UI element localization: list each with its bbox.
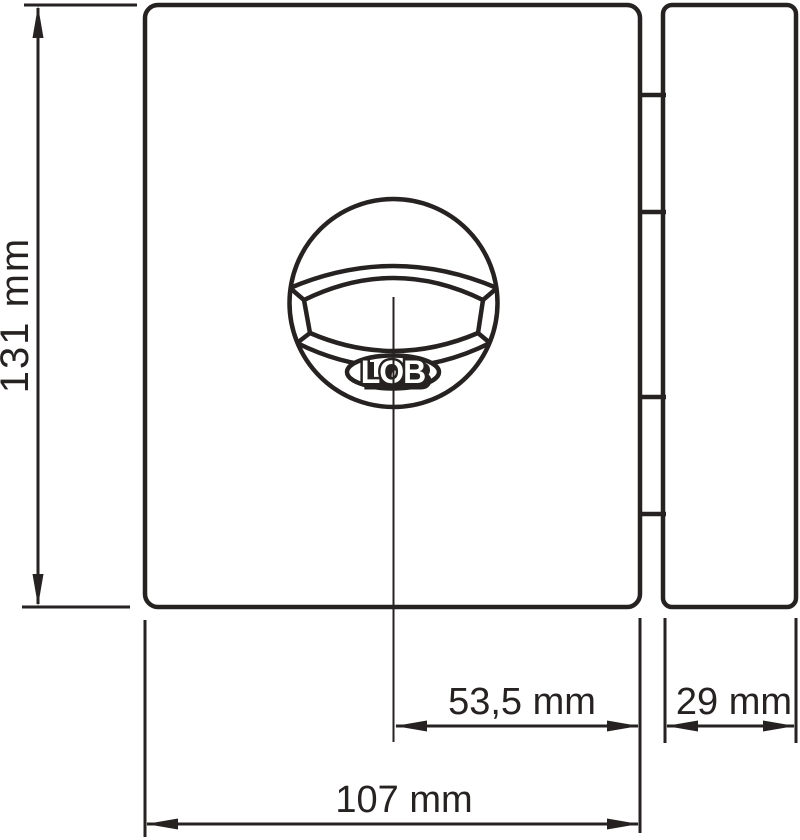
center-offset-arrow-left-icon [395, 721, 427, 732]
body-width-arrow-left-icon [146, 819, 178, 830]
technical-drawing-canvas: LOB LOB 131 mm 53,5 [0, 0, 800, 840]
lock-dimension-drawing: LOB LOB 131 mm 53,5 [0, 0, 800, 840]
body-width-arrow-right-icon [607, 819, 639, 830]
dimension-body-width: 107 mm [145, 620, 639, 837]
strike-width-dimension-label: 29 mm [676, 681, 792, 723]
lock-assembly: LOB LOB [145, 5, 796, 742]
height-arrow-up-icon [33, 6, 44, 38]
dimension-height: 131 mm [0, 5, 137, 607]
dimension-strike-width: 29 mm [665, 618, 796, 743]
body-width-dimension-label: 107 mm [335, 779, 472, 821]
center-offset-dimension-label: 53,5 mm [448, 681, 596, 723]
center-offset-arrow-right-icon [607, 721, 639, 732]
height-dimension-label: 131 mm [0, 237, 37, 394]
strike-plate-outline [663, 5, 796, 607]
height-arrow-down-icon [33, 574, 44, 606]
